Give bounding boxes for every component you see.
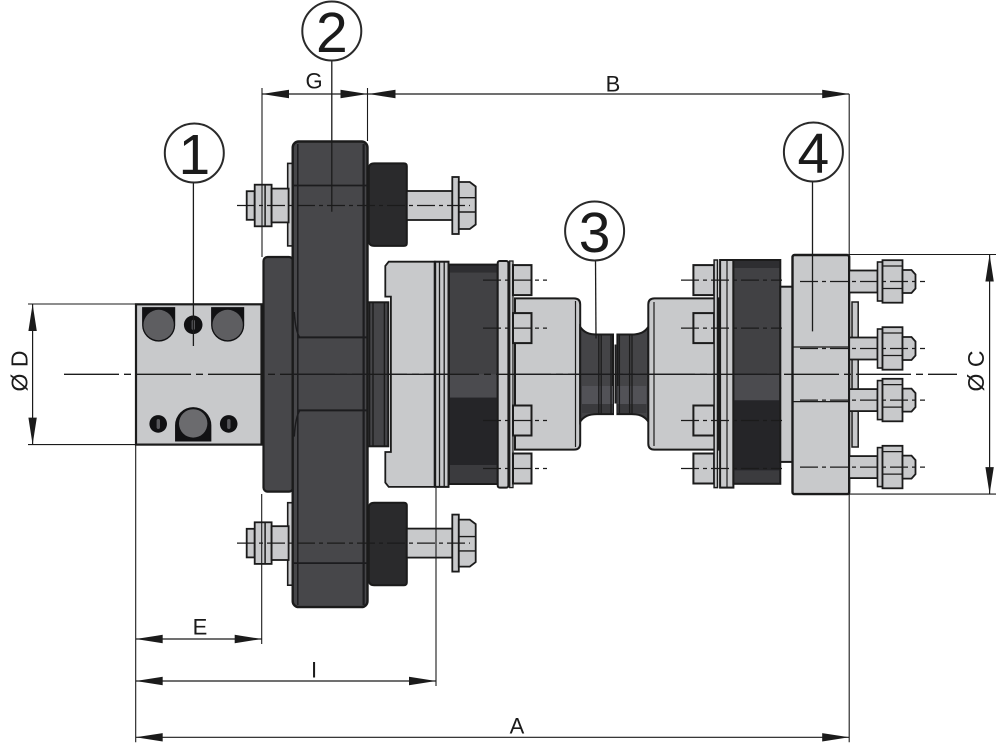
svg-text:1: 1 (178, 123, 210, 187)
svg-text:A: A (510, 714, 525, 739)
svg-text:E: E (193, 615, 208, 640)
svg-text:3: 3 (579, 201, 611, 265)
svg-text:I: I (311, 658, 317, 683)
svg-text:4: 4 (798, 122, 830, 186)
svg-text:2: 2 (316, 1, 348, 65)
svg-text:B: B (606, 72, 621, 97)
svg-text:Ø D: Ø D (7, 351, 33, 392)
svg-text:G: G (305, 69, 322, 94)
svg-text:Ø C: Ø C (963, 351, 989, 392)
